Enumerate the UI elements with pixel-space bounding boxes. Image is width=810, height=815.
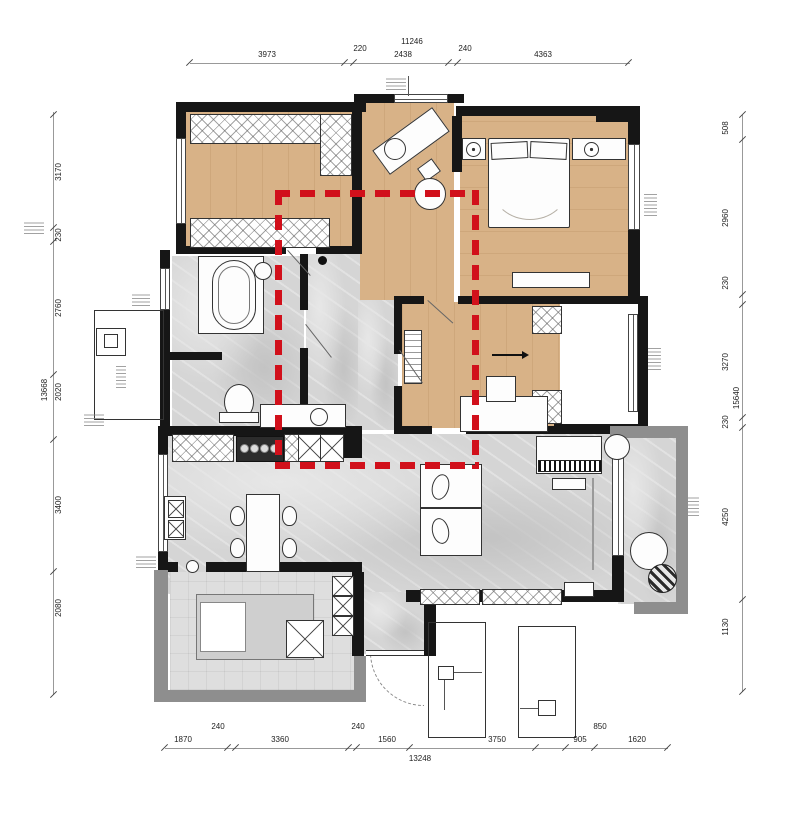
- dim-left-2: 230: [55, 228, 63, 241]
- dim-left-3: 2760: [55, 299, 63, 317]
- laundry-counter-top: [200, 602, 246, 652]
- dim-bottom-overall: 13248: [409, 755, 431, 763]
- vanity-counter: [260, 404, 346, 428]
- wall: [300, 254, 308, 310]
- fridge-top: [168, 500, 184, 518]
- dimension-line-right: [742, 115, 743, 692]
- dim-bottom-small-2: 240: [351, 723, 364, 731]
- rug-edge-line: [592, 478, 594, 570]
- wall: [452, 116, 462, 172]
- doormat: [564, 582, 594, 597]
- nightstand-right: [572, 138, 626, 160]
- washing-machine: [286, 620, 324, 658]
- entry-door-threshold: [366, 650, 424, 656]
- dim-bottom-small-3: 850: [593, 723, 606, 731]
- exterior-outline-1: [428, 622, 486, 738]
- leader-line: [444, 680, 445, 710]
- section-marker-line: [408, 76, 409, 96]
- highlight-rect-bottom: [275, 462, 479, 469]
- kitchen-cabinet: [298, 434, 322, 462]
- wall: [638, 296, 648, 432]
- dim-left-5: 3400: [55, 496, 63, 514]
- lamp-icon: [466, 142, 481, 157]
- piano-keys: [538, 460, 602, 472]
- exterior-column-2: [538, 700, 556, 716]
- entry-door-swing-arc: [370, 652, 424, 706]
- dim-right-overall: 15640: [733, 387, 741, 409]
- door-direction-arrowhead: [522, 351, 529, 359]
- toilet-tank: [219, 412, 259, 423]
- wardrobe-bedroom1-right: [320, 114, 352, 176]
- bed-end-bench: [512, 272, 590, 288]
- dining-table: [246, 494, 280, 572]
- dim-left-overall: 13668: [41, 379, 49, 401]
- dim-right-3: 230: [722, 276, 730, 289]
- dim-bottom-5: 905: [573, 736, 586, 744]
- annotation-note: [644, 194, 657, 216]
- laundry-cabinet-2: [332, 596, 354, 616]
- wall: [394, 426, 432, 434]
- burner-icon: [260, 444, 269, 453]
- annotation-note: [386, 78, 406, 90]
- wall: [176, 102, 186, 138]
- dining-chair: [282, 506, 297, 526]
- dim-left-6: 2080: [55, 599, 63, 617]
- wall: [448, 94, 464, 103]
- dim-right-2: 2960: [722, 209, 730, 227]
- annotation-note: [24, 220, 44, 234]
- exterior-column-1: [438, 666, 454, 680]
- ac-platform-outline: [94, 310, 164, 420]
- window-study: [394, 94, 448, 103]
- wall: [164, 352, 222, 360]
- annotation-note: [116, 366, 126, 388]
- floor-plan-canvas: 11246 3973 220 2438 240 4363 1870 240 33…: [0, 0, 810, 815]
- annotation-note: [648, 348, 661, 370]
- exterior-outline-2: [518, 626, 576, 738]
- shoe-cabinet-2: [482, 589, 562, 605]
- dim-bottom-2: 3360: [271, 736, 289, 744]
- dim-top-3: 4363: [534, 51, 552, 59]
- dim-right-5: 230: [722, 415, 730, 428]
- ac-unit-inner: [104, 334, 118, 348]
- dim-bottom-6: 1620: [628, 736, 646, 744]
- wall: [176, 102, 362, 112]
- wall: [362, 94, 394, 103]
- wall: [628, 230, 640, 302]
- lamp-icon: [584, 142, 599, 157]
- dim-left-4: 2020: [55, 383, 63, 401]
- bath-sink: [254, 262, 272, 280]
- dim-top-small-2: 240: [458, 45, 471, 53]
- dim-top-small-1: 220: [353, 45, 366, 53]
- dim-top-2: 2438: [394, 51, 412, 59]
- annotation-note: [132, 294, 150, 306]
- blanket-arc: [492, 156, 568, 220]
- bathtub-inner: [218, 266, 250, 324]
- burner-icon: [250, 444, 259, 453]
- wall: [628, 106, 640, 144]
- window-master: [628, 144, 640, 230]
- fridge-bottom: [168, 520, 184, 538]
- dim-top-overall: 11246: [401, 38, 423, 46]
- wall: [394, 304, 402, 354]
- wall: [612, 556, 624, 602]
- laundry-cabinet-1: [332, 576, 354, 596]
- wardrobe-bedroom1-bottom: [190, 218, 330, 248]
- dim-right-1: 508: [722, 121, 730, 134]
- bedroom2-cabinet: [486, 376, 516, 402]
- wardrobe-bedroom2-left: [404, 330, 422, 384]
- dining-chair: [230, 506, 245, 526]
- laundry-wall: [154, 570, 168, 702]
- laundry-wall: [354, 656, 366, 702]
- window-bay: [628, 314, 638, 412]
- highlight-rect-left: [275, 190, 282, 469]
- wall: [554, 296, 648, 304]
- dim-bottom-4: 3750: [488, 736, 506, 744]
- leader-line: [454, 672, 482, 673]
- laundry-cabinet-3: [332, 616, 354, 636]
- living-desk-1: [420, 464, 482, 508]
- kitchen-cabinet-2: [320, 434, 344, 462]
- laundry-wall: [154, 690, 366, 702]
- dim-left-1: 3170: [55, 163, 63, 181]
- highlight-rect-right: [472, 190, 479, 469]
- annotation-note: [688, 496, 699, 516]
- hallway-floor-2: [358, 300, 398, 430]
- balcony-side-table: [648, 564, 677, 593]
- wall: [160, 250, 170, 268]
- dim-bottom-3: 1560: [378, 736, 396, 744]
- annotation-note: [84, 414, 104, 426]
- vanity-sink: [310, 408, 328, 426]
- piano-bench: [552, 478, 586, 490]
- burner-icon: [240, 444, 249, 453]
- balcony-wall: [676, 426, 688, 614]
- door-pivot: [186, 560, 199, 573]
- balcony-wall: [634, 602, 688, 614]
- dim-top-1: 3973: [258, 51, 276, 59]
- window-bedroom1: [176, 138, 186, 224]
- dim-right-4: 3270: [722, 353, 730, 371]
- highlight-rect-top: [275, 190, 479, 197]
- annotation-note: [136, 556, 156, 568]
- wall: [206, 562, 362, 572]
- dim-bottom-small-1: 240: [211, 723, 224, 731]
- wall: [344, 426, 362, 458]
- wall: [352, 104, 362, 254]
- closet-bedroom2-top: [532, 306, 562, 334]
- living-desk-2: [420, 508, 482, 556]
- dimension-line-top: [190, 63, 630, 64]
- shoe-cabinet-1: [420, 589, 480, 605]
- wall: [394, 296, 424, 304]
- leader-line: [520, 708, 538, 709]
- wall: [158, 426, 168, 454]
- door-direction-arrow: [492, 354, 522, 356]
- dim-right-7: 1130: [722, 618, 730, 635]
- dim-bottom-1: 1870: [174, 736, 192, 744]
- dim-right-6: 4250: [722, 508, 730, 526]
- shower-head-icon: [318, 256, 327, 265]
- balcony-sliding-door: [612, 456, 624, 556]
- window-bathroom: [160, 268, 170, 310]
- kitchen-counter: [172, 434, 234, 462]
- plant-icon: [604, 434, 630, 460]
- wall: [300, 348, 308, 404]
- study-chair: [384, 138, 406, 160]
- dining-chair: [230, 538, 245, 558]
- dining-chair: [282, 538, 297, 558]
